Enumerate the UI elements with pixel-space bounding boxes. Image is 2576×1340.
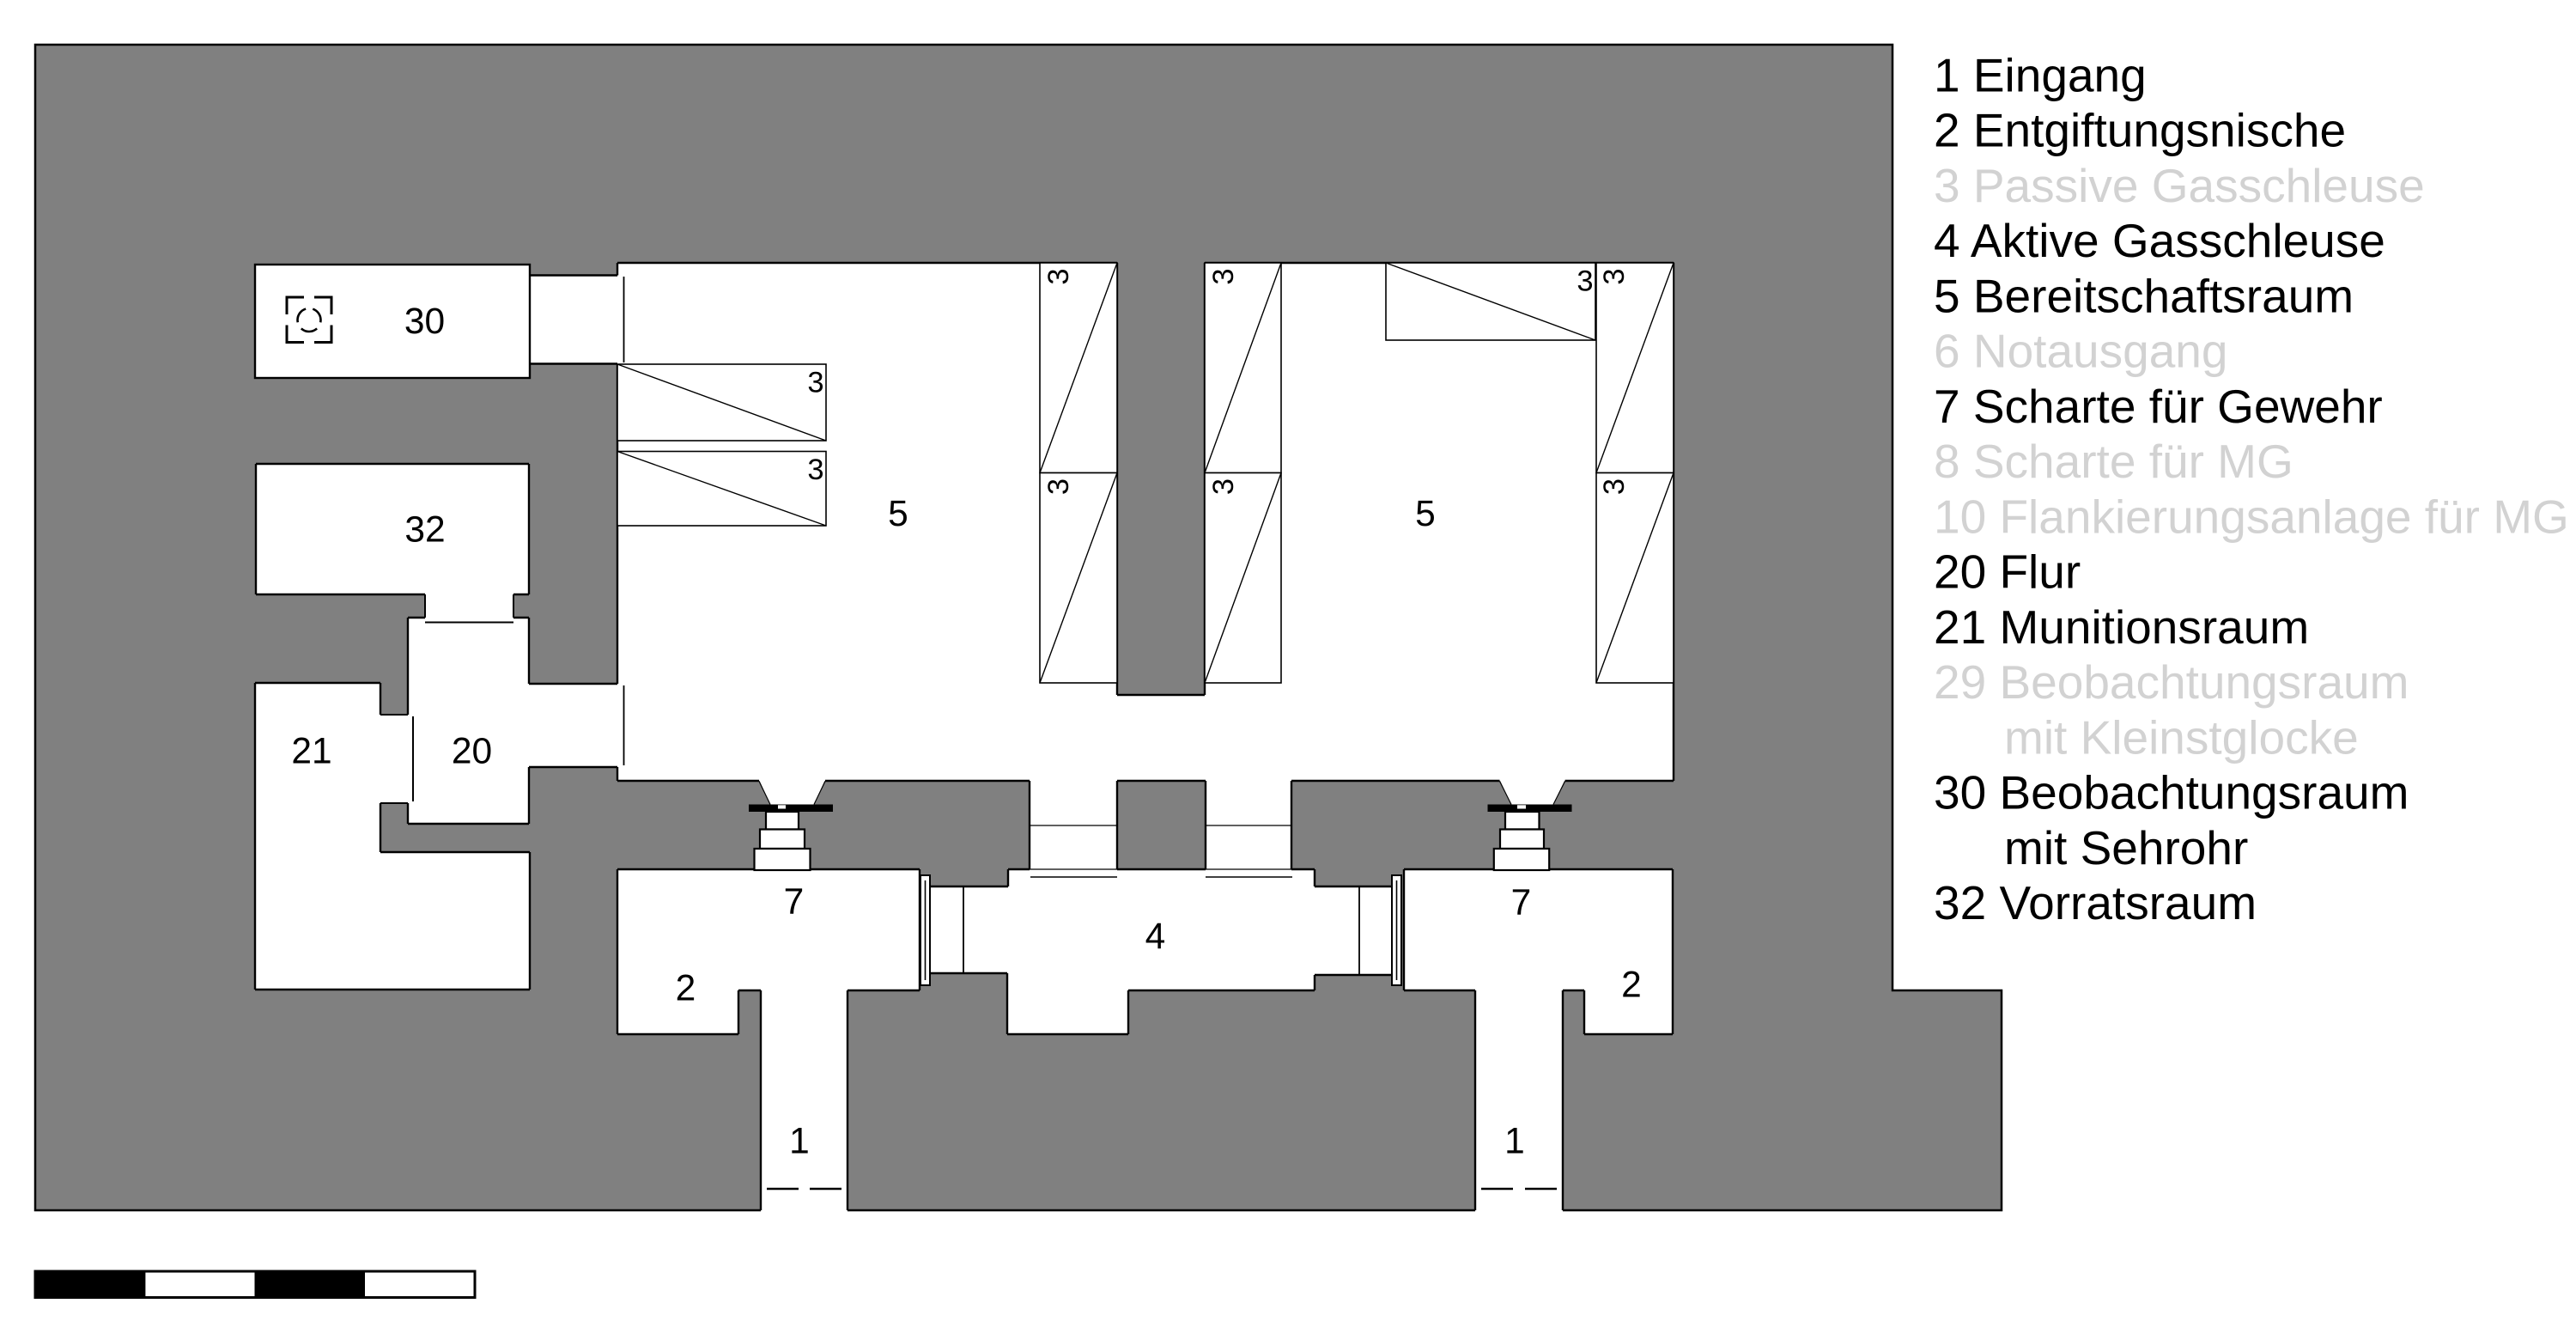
svg-text:7 Scharte für Gewehr: 7 Scharte für Gewehr (1934, 380, 2383, 433)
svg-text:3: 3 (1042, 268, 1075, 284)
svg-text:2: 2 (1621, 965, 1642, 1006)
svg-text:8 Scharte für MG: 8 Scharte für MG (1934, 435, 2293, 488)
svg-text:5: 5 (888, 494, 908, 534)
svg-text:30: 30 (404, 301, 445, 342)
svg-text:3: 3 (807, 454, 823, 486)
svg-text:4 Aktive Gasschleuse: 4 Aktive Gasschleuse (1934, 214, 2385, 267)
svg-text:3: 3 (1598, 268, 1631, 284)
svg-text:21: 21 (291, 732, 331, 772)
svg-text:3: 3 (807, 367, 823, 399)
svg-text:5: 5 (1415, 494, 1436, 534)
svg-text:5 Bereitschaftsraum: 5 Bereitschaftsraum (1934, 269, 2354, 322)
svg-text:3: 3 (1042, 478, 1075, 495)
svg-text:1: 1 (1504, 1122, 1525, 1162)
svg-text:29 Beobachtungsraum: 29 Beobachtungsraum (1934, 655, 2409, 709)
svg-text:1: 1 (789, 1122, 810, 1162)
svg-text:21 Munitionsraum: 21 Munitionsraum (1934, 600, 2309, 654)
svg-text:3: 3 (1207, 268, 1240, 284)
svg-text:7: 7 (1511, 883, 1532, 923)
svg-text:3: 3 (1598, 478, 1631, 495)
svg-text:3: 3 (1207, 478, 1240, 495)
svg-text:20: 20 (452, 732, 492, 772)
svg-text:10 Flankierungsanlage für MG: 10 Flankierungsanlage für MG (1934, 490, 2569, 543)
svg-text:32 Vorratsraum: 32 Vorratsraum (1934, 876, 2257, 929)
svg-text:7: 7 (784, 882, 805, 923)
svg-text:mit Kleinstglocke: mit Kleinstglocke (2004, 710, 2359, 764)
svg-text:30 Beobachtungsraum: 30 Beobachtungsraum (1934, 766, 2409, 819)
svg-text:4: 4 (1145, 917, 1166, 957)
svg-text:2 Entgiftungsnische: 2 Entgiftungsnische (1934, 104, 2346, 157)
svg-text:1 Eingang: 1 Eingang (1934, 48, 2147, 101)
svg-text:2: 2 (676, 969, 696, 1009)
svg-text:3 Passive Gasschleuse: 3 Passive Gasschleuse (1934, 159, 2425, 212)
svg-text:32: 32 (404, 510, 445, 551)
svg-text:20 Flur: 20 Flur (1934, 545, 2081, 599)
svg-text:3: 3 (1577, 265, 1593, 298)
svg-text:6 Notausgang: 6 Notausgang (1934, 325, 2228, 378)
svg-text:mit Sehrohr: mit Sehrohr (2004, 821, 2248, 874)
